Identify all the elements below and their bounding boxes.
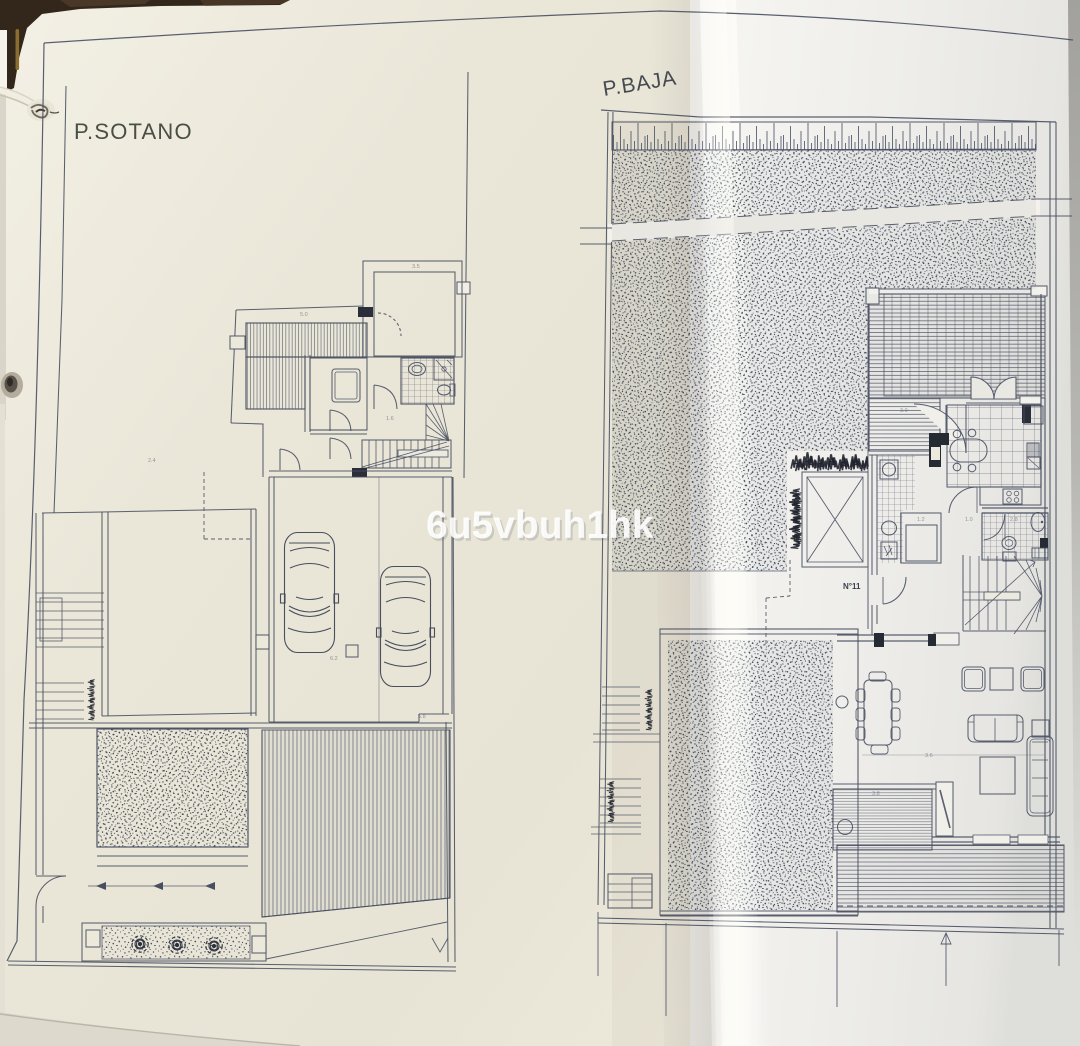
svg-text:6u5vbuh1hk: 6u5vbuh1hk: [426, 504, 654, 547]
svg-text:5.8: 5.8: [418, 714, 426, 720]
svg-text:1.2: 1.2: [917, 517, 925, 523]
svg-text:2.2: 2.2: [830, 462, 838, 468]
svg-text:1.0: 1.0: [965, 517, 973, 523]
svg-text:3.9: 3.9: [900, 408, 908, 414]
svg-text:2.4: 2.4: [148, 458, 156, 464]
svg-text:5.0: 5.0: [300, 312, 308, 318]
svg-text:P.SOTANO: P.SOTANO: [74, 119, 193, 144]
svg-text:N°11: N°11: [843, 582, 861, 591]
svg-text:6.2: 6.2: [330, 656, 338, 662]
svg-text:2.8: 2.8: [1010, 517, 1018, 523]
svg-text:3.6: 3.6: [925, 753, 933, 759]
svg-text:3.5: 3.5: [412, 264, 420, 270]
svg-text:1.6: 1.6: [386, 416, 394, 422]
svg-text:3.8: 3.8: [872, 791, 880, 797]
